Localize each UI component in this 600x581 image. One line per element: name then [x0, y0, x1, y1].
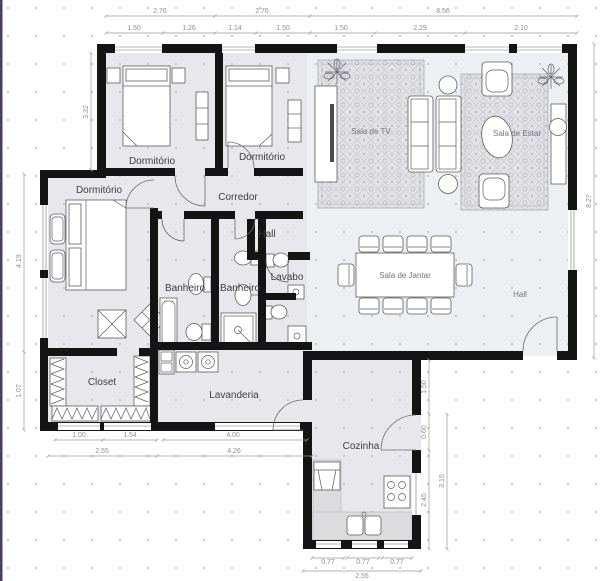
dim-text: 3.32	[83, 105, 90, 119]
room-label-sala-jantar: Sala de Jantar	[379, 271, 431, 280]
room-label-dormitorio-2: Dormitório	[239, 152, 286, 163]
dim-text: 2.29	[413, 25, 427, 32]
dim-text: 4.00	[226, 432, 240, 439]
room-label-lavanderia: Lavanderia	[209, 390, 259, 401]
dim-text: 0.77	[356, 559, 370, 566]
dim-text: 4.26	[227, 448, 241, 455]
room-label-hall: Hall	[258, 229, 275, 240]
dim-text: 1.50	[127, 25, 141, 32]
dim-text: 0.60	[421, 425, 428, 439]
dim-text: 0.77	[390, 559, 404, 566]
room-label-closet: Closet	[88, 377, 117, 388]
room-label-dormitorio-3: Dormitório	[76, 185, 123, 196]
dim-text: 1.26	[182, 25, 196, 32]
dim-text: 8.56	[436, 8, 450, 15]
dim-text: 3.15	[439, 474, 446, 488]
dim-text: 1.50	[421, 380, 428, 394]
room-label-hall-2: Hall	[513, 290, 527, 299]
dim-text: 2.55	[95, 448, 109, 455]
lavanderia-appliances	[159, 350, 218, 374]
dim-text: 1.07	[16, 384, 23, 398]
room-label-corredor: Corredor	[218, 192, 258, 203]
room-label-cozinha: Cozinha	[343, 441, 380, 452]
floor-plan-canvas: 2.76 2.76 8.56 1.50 1.26 1.14 1.50 1.50 …	[0, 0, 600, 581]
dim-text: 1.50	[276, 25, 290, 32]
dim-text: 2.45	[421, 493, 428, 507]
room-label-sala-estar: Sala de Estar	[493, 129, 541, 138]
room-label-banheiro-1: Banheiro	[165, 283, 205, 294]
dim-text: 2.55	[355, 573, 369, 580]
dim-text: 2.10	[514, 25, 528, 32]
room-label-banheiro-2: Banheiro	[220, 283, 260, 294]
dim-text: 1.14	[228, 25, 242, 32]
dim-text: 2.76	[153, 8, 167, 15]
floor-plan-screenshot: 2.76 2.76 8.56 1.50 1.26 1.14 1.50 1.50 …	[0, 0, 600, 581]
dim-text: 4.19	[16, 254, 23, 268]
room-label-sala-tv: Sala de TV	[351, 127, 391, 136]
dim-text: 2.76	[255, 8, 269, 15]
room-label-dormitorio-1: Dormitório	[129, 156, 176, 167]
dim-text: 1.00	[72, 432, 86, 439]
dim-text: 8.27	[586, 194, 593, 208]
dim-text: 1.54	[123, 432, 137, 439]
dim-text: 1.50	[334, 25, 348, 32]
dim-text: 0.77	[321, 559, 335, 566]
room-label-lavabo: Lavabo	[271, 272, 304, 283]
